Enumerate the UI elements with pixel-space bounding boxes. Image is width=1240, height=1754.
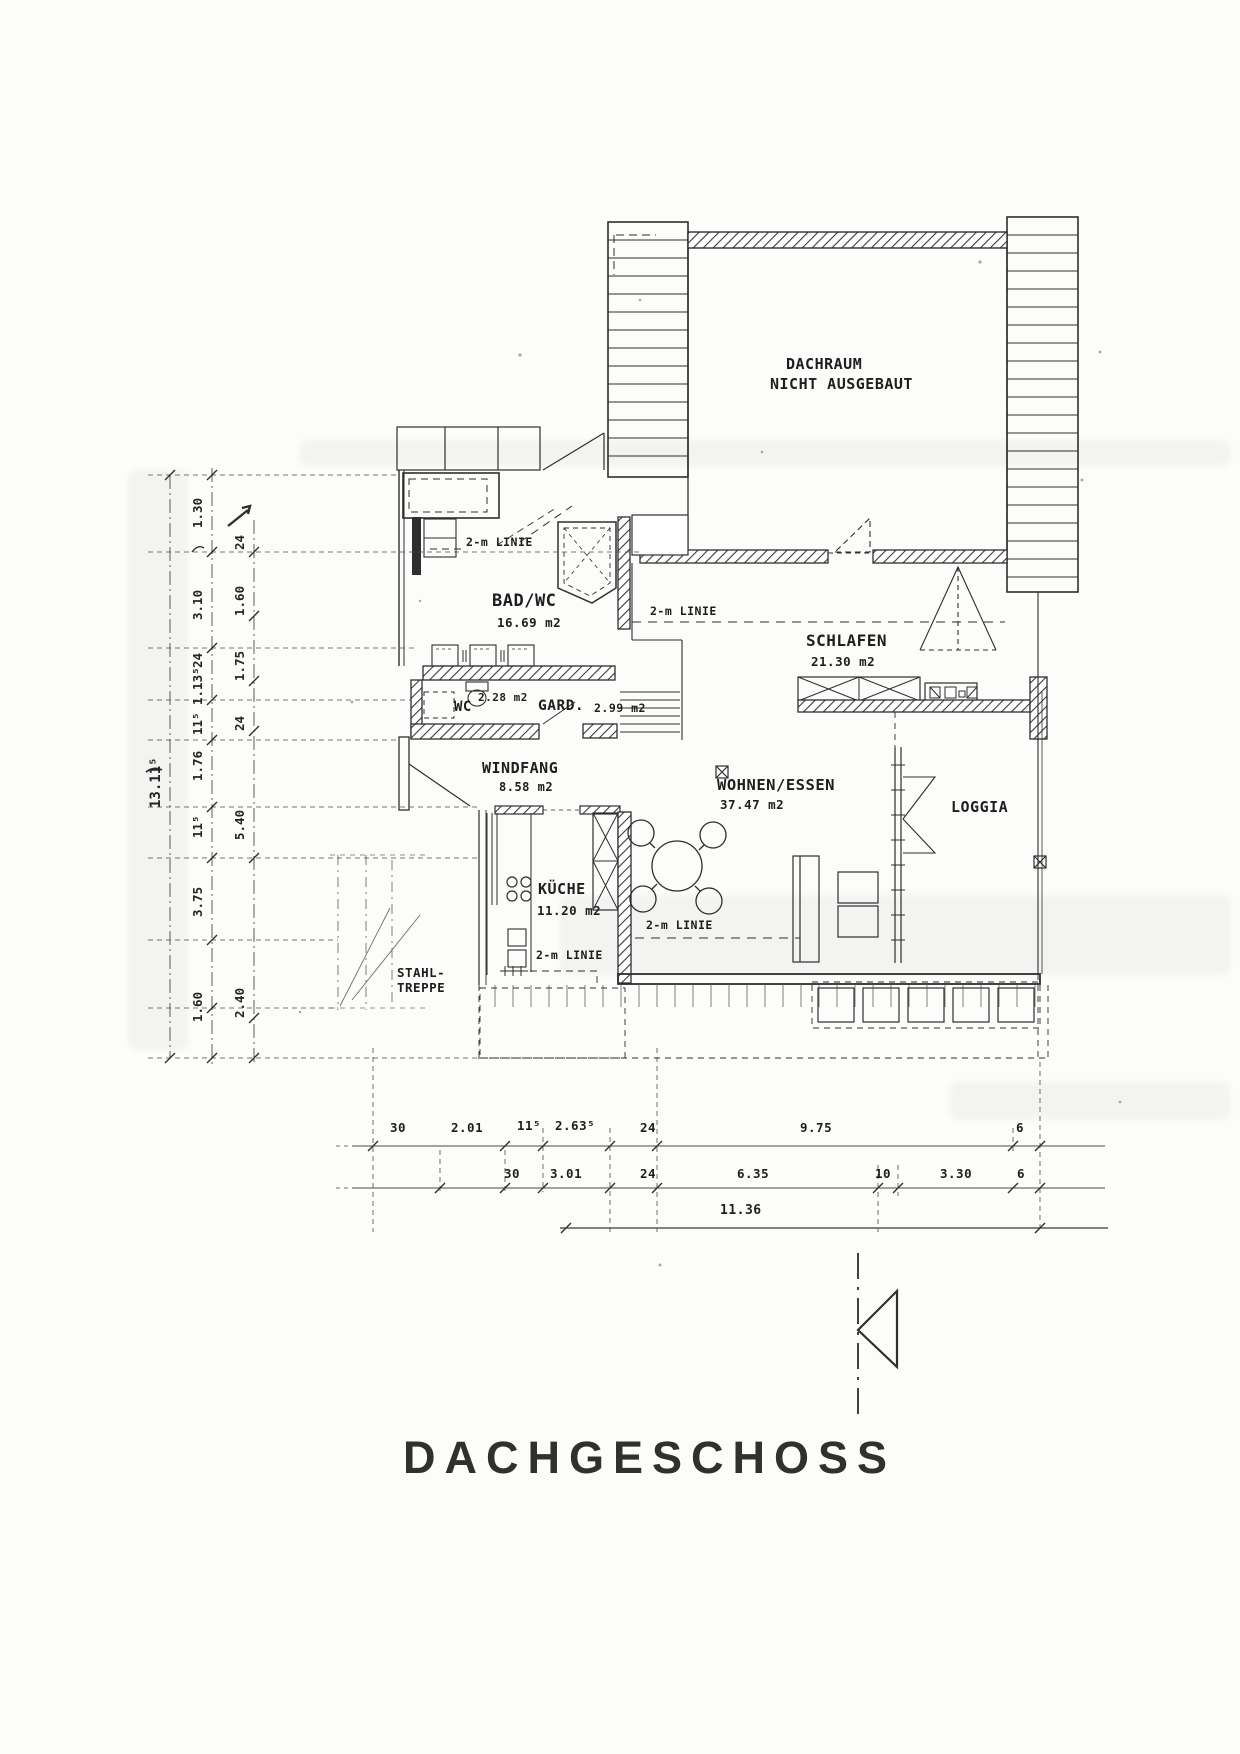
dim-left-inner: 11⁵	[190, 815, 206, 838]
room-area-badwc: 16.69 m2	[497, 617, 561, 630]
windfang-entry	[399, 737, 470, 810]
dim-bottom-row1: 2.01	[451, 1122, 483, 1135]
sinks	[432, 645, 534, 666]
dim-bottom-row1: 6	[1016, 1122, 1024, 1135]
room-label-gard: GARD.	[538, 699, 584, 714]
dim-bottom-row1: 24	[640, 1122, 656, 1135]
room-label-windfang: WINDFANG	[482, 761, 558, 776]
bathtub	[403, 473, 499, 518]
shower	[558, 522, 616, 603]
bath-upper-block	[397, 427, 604, 470]
dimension-ticks	[368, 1141, 1045, 1233]
dim-bottom-row2: 6	[1017, 1168, 1025, 1181]
wohnen-furniture	[716, 766, 1046, 962]
dim-left-outer: 2.40	[232, 988, 248, 1018]
roof-hatch-strip-right	[1007, 217, 1078, 592]
dim-left-outer: 1.60	[232, 586, 248, 616]
dim-left-inner: 3.75	[190, 887, 206, 917]
room-label-badwc: BAD/WC	[492, 593, 556, 610]
dim-left-outer: 5.40	[232, 810, 248, 840]
room-area-schlafen: 21.30 m2	[811, 656, 875, 669]
dim-bottom-row1: 9.75	[800, 1122, 832, 1135]
dim-bottom-row2: 6.35	[737, 1168, 769, 1181]
room-label-stahltreppe-line1: STAHL-	[397, 967, 445, 980]
room-area-wc: 2.28 m2	[478, 692, 528, 703]
north-arrow	[858, 1253, 897, 1418]
dim-left-inner: 3.10	[190, 590, 206, 620]
sink-wall-fixtures	[423, 645, 615, 718]
schlafen-closet	[798, 677, 1047, 775]
room-label-schlafen: SCHLAFEN	[806, 633, 887, 649]
dim-left-inner: 1.13⁵	[190, 667, 206, 705]
dim-left-outer: 24	[232, 716, 248, 731]
room-area-windfang: 8.58 m2	[499, 781, 553, 793]
dim-left-outer: 24	[232, 535, 248, 550]
room-label-wc: WC	[454, 700, 472, 714]
two-m-linie-label: 2-m LINIE	[466, 537, 533, 549]
room-area-kueche: 11.20 m2	[537, 905, 601, 918]
washbasin-counter	[424, 519, 456, 557]
dim-bottom-row1: 30	[390, 1122, 406, 1135]
dim-left-inner: 24	[190, 653, 206, 668]
left-dimension-chain	[146, 468, 640, 1065]
dim-left-inner: 1.30	[190, 498, 206, 528]
electric-symbol	[1034, 856, 1046, 868]
dim-left-total: 13.11⁵	[148, 757, 164, 808]
dining-set	[628, 820, 726, 914]
cooktop-burners	[507, 877, 531, 901]
dim-left-inner: 1.76	[190, 751, 206, 781]
two-m-linie-label: 2-m LINIE	[646, 920, 713, 932]
dim-bottom-row2: 24	[640, 1168, 656, 1181]
two-m-linie-label: 2-m LINIE	[650, 606, 717, 618]
scanned-floorplan-page: DACHRAUM NICHT AUSGEBAUT BAD/WC 16.69 m2…	[0, 0, 1240, 1754]
room-label-dachraum-line1: DACHRAUM	[786, 357, 862, 372]
room-label-kueche: KÜCHE	[538, 882, 586, 897]
plan-title: DACHGESCHOSS	[403, 1432, 896, 1484]
room-area-gard: 2.99 m2	[594, 703, 646, 715]
dim-left-inner: 11⁵	[190, 712, 206, 735]
dim-bottom-total: 11.36	[720, 1204, 762, 1217]
dim-bottom-row2: 30	[504, 1168, 520, 1181]
dim-bottom-row2: 10	[875, 1168, 891, 1181]
dim-bottom-row2: 3.30	[940, 1168, 972, 1181]
stairwell	[620, 640, 682, 740]
dim-bottom-row1: 2.63⁵	[555, 1120, 595, 1133]
roof-hatch-strip-left	[608, 222, 688, 477]
dim-bottom-row1: 11⁵	[517, 1120, 541, 1133]
room-label-stahltreppe-line2: TREPPE	[397, 982, 445, 995]
dachraum-walls	[632, 232, 1007, 563]
dim-left-outer: 1.75	[232, 651, 248, 681]
scan-noise-dots	[299, 260, 1122, 1266]
room-label-wohnen-essen: WOHNEN/ESSEN	[717, 778, 835, 794]
dim-left-inner: 1.60	[190, 992, 206, 1022]
two-m-linie-label: 2-m LINIE	[536, 950, 603, 962]
floorplan-drawing	[0, 0, 1240, 1754]
dim-bottom-row2: 3.01	[550, 1168, 582, 1181]
badwc-room	[399, 470, 630, 666]
room-area-wohnen-essen: 37.47 m2	[720, 799, 784, 812]
room-label-loggia: LOGGIA	[951, 800, 1008, 815]
room-label-dachraum-line2: NICHT AUSGEBAUT	[770, 377, 913, 392]
wc-gard-walls	[411, 680, 617, 739]
